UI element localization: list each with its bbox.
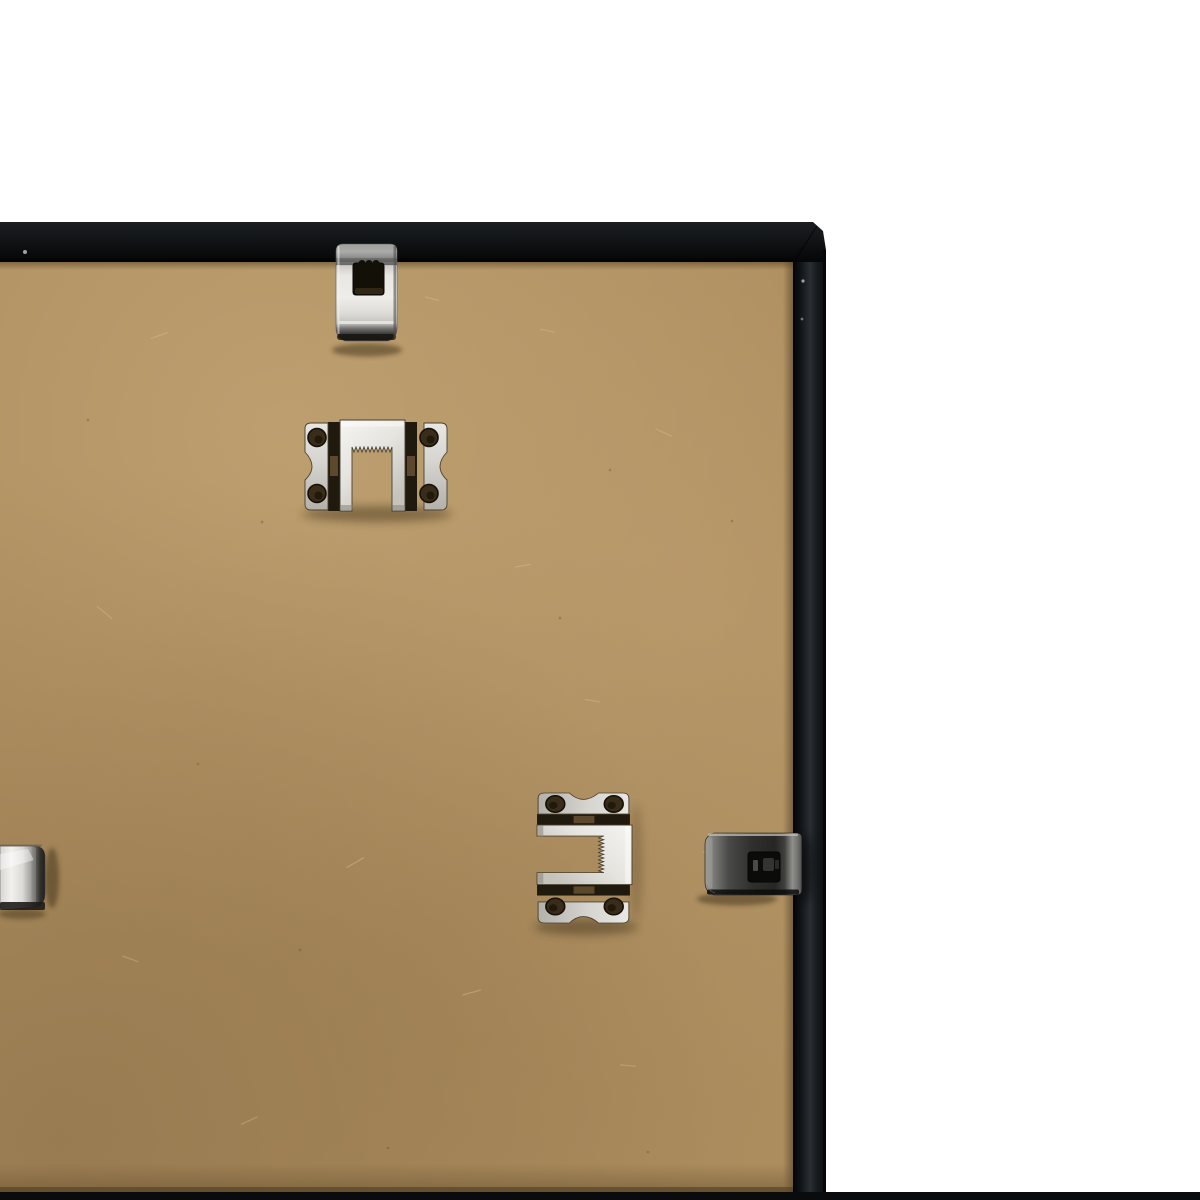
right-rail-outer-edge bbox=[823, 250, 826, 1192]
dust-speck bbox=[801, 279, 804, 282]
photo-scene bbox=[0, 0, 1200, 1200]
flexi-clip-right bbox=[705, 833, 802, 895]
backing-board bbox=[0, 262, 793, 1192]
right-frame-rail bbox=[793, 262, 826, 1192]
flexi-clip-left bbox=[0, 845, 45, 911]
dust-speck bbox=[23, 250, 27, 254]
top-frame-rail bbox=[0, 222, 826, 262]
board-bottom-edge bbox=[0, 1187, 793, 1192]
bottom-crop-bar bbox=[0, 1192, 1200, 1200]
spring-clip-top bbox=[336, 244, 397, 341]
dust-speck bbox=[801, 318, 804, 321]
photo-canvas bbox=[0, 0, 1200, 1200]
board-right-shadow bbox=[783, 262, 793, 1192]
